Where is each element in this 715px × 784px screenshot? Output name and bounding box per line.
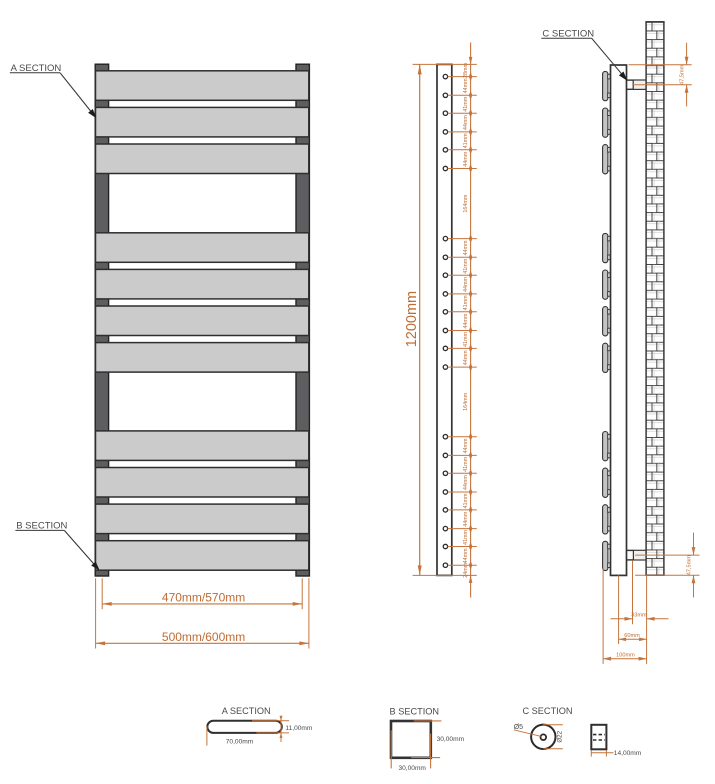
svg-text:41mm: 41mm — [463, 133, 469, 148]
svg-text:41mm: 41mm — [463, 258, 469, 273]
svg-text:44mm: 44mm — [463, 350, 469, 365]
svg-text:B SECTION: B SECTION — [390, 707, 440, 717]
svg-text:70,00mm: 70,00mm — [226, 738, 254, 745]
svg-text:Ø22: Ø22 — [557, 730, 564, 742]
svg-text:33mm: 33mm — [631, 613, 647, 619]
svg-text:44mm: 44mm — [463, 511, 469, 526]
svg-text:44mm: 44mm — [463, 277, 469, 292]
svg-text:41mm: 41mm — [463, 332, 469, 347]
svg-text:1200mm: 1200mm — [404, 291, 420, 347]
svg-text:470mm/570mm: 470mm/570mm — [162, 590, 245, 604]
svg-text:41mm: 41mm — [463, 456, 469, 471]
svg-text:100mm: 100mm — [616, 653, 635, 659]
svg-text:164mm: 164mm — [463, 194, 469, 212]
svg-text:47,5mm: 47,5mm — [687, 555, 693, 576]
svg-text:500mm/600mm: 500mm/600mm — [162, 630, 245, 644]
svg-text:44mm: 44mm — [463, 313, 469, 328]
svg-text:11,00mm: 11,00mm — [285, 725, 313, 732]
svg-text:44mm: 44mm — [463, 240, 469, 255]
svg-text:41mm: 41mm — [463, 295, 469, 310]
svg-text:28mm: 28mm — [463, 63, 469, 78]
svg-text:C SECTION: C SECTION — [542, 28, 594, 39]
svg-text:A SECTION: A SECTION — [222, 706, 271, 716]
svg-text:C SECTION: C SECTION — [522, 706, 572, 716]
svg-text:24mm: 24mm — [463, 562, 469, 577]
svg-text:44mm: 44mm — [463, 115, 469, 130]
svg-text:47,5mm: 47,5mm — [679, 64, 685, 85]
svg-text:41mm: 41mm — [463, 530, 469, 545]
svg-text:41mm: 41mm — [463, 96, 469, 111]
svg-text:164mm: 164mm — [463, 392, 469, 410]
svg-text:44mm: 44mm — [463, 438, 469, 453]
svg-text:30,00mm: 30,00mm — [398, 765, 426, 772]
svg-text:14,00mm: 14,00mm — [614, 750, 642, 757]
svg-text:60mm: 60mm — [624, 633, 640, 639]
svg-text:44mm: 44mm — [463, 78, 469, 93]
svg-text:44mm: 44mm — [463, 548, 469, 563]
svg-text:30,00mm: 30,00mm — [437, 736, 465, 743]
svg-text:44mm: 44mm — [463, 475, 469, 490]
svg-text:44mm: 44mm — [463, 151, 469, 166]
svg-text:41mm: 41mm — [463, 493, 469, 508]
